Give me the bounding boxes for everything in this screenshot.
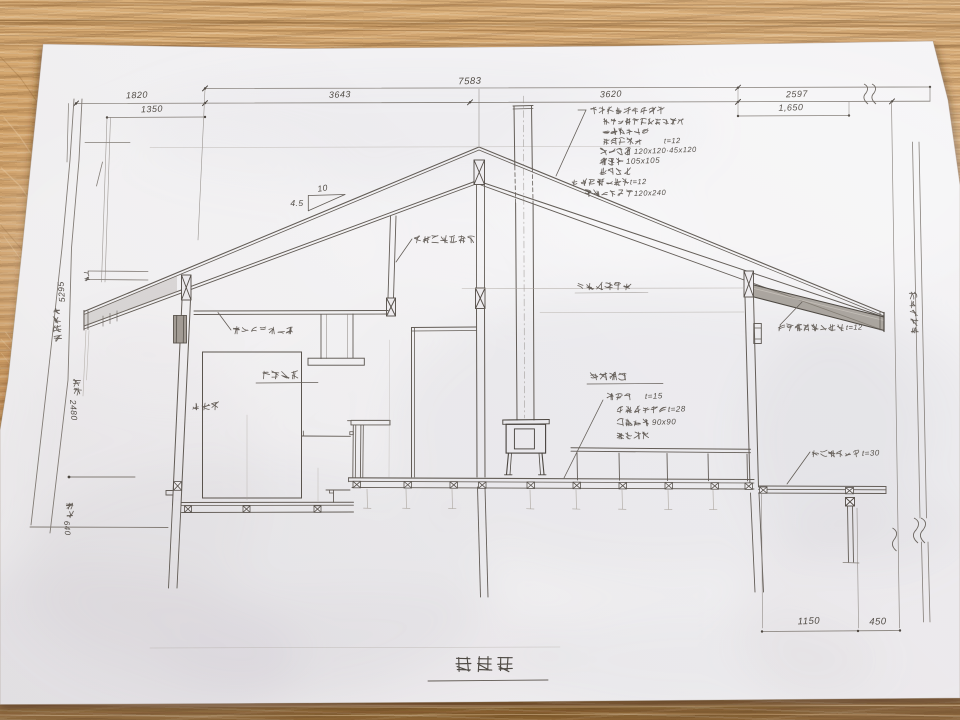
svg-text:1820: 1820 bbox=[126, 90, 148, 101]
svg-text:10: 10 bbox=[317, 182, 329, 193]
svg-text:2480: 2480 bbox=[68, 398, 80, 421]
svg-text:t=28: t=28 bbox=[668, 404, 686, 414]
svg-text:t=30: t=30 bbox=[862, 448, 880, 458]
svg-text:t=15: t=15 bbox=[645, 391, 663, 401]
svg-text:450: 450 bbox=[869, 616, 887, 628]
svg-text:90x90: 90x90 bbox=[652, 417, 677, 427]
svg-text:t=12: t=12 bbox=[664, 136, 681, 146]
svg-text:3620: 3620 bbox=[600, 89, 622, 100]
svg-text:3643: 3643 bbox=[329, 89, 351, 100]
svg-text:120x240: 120x240 bbox=[634, 188, 667, 198]
svg-text:1,650: 1,650 bbox=[778, 102, 803, 113]
svg-text:640: 640 bbox=[62, 521, 72, 536]
svg-text:1350: 1350 bbox=[141, 104, 163, 115]
svg-text:105x105: 105x105 bbox=[626, 156, 661, 166]
svg-text:t=12: t=12 bbox=[846, 322, 863, 332]
svg-text:2597: 2597 bbox=[785, 89, 809, 100]
svg-text:t=12: t=12 bbox=[630, 177, 647, 187]
svg-text:5295: 5295 bbox=[56, 281, 67, 303]
svg-text:7583: 7583 bbox=[458, 76, 482, 88]
svg-text:4.5: 4.5 bbox=[290, 198, 303, 208]
svg-text:1150: 1150 bbox=[798, 616, 821, 628]
